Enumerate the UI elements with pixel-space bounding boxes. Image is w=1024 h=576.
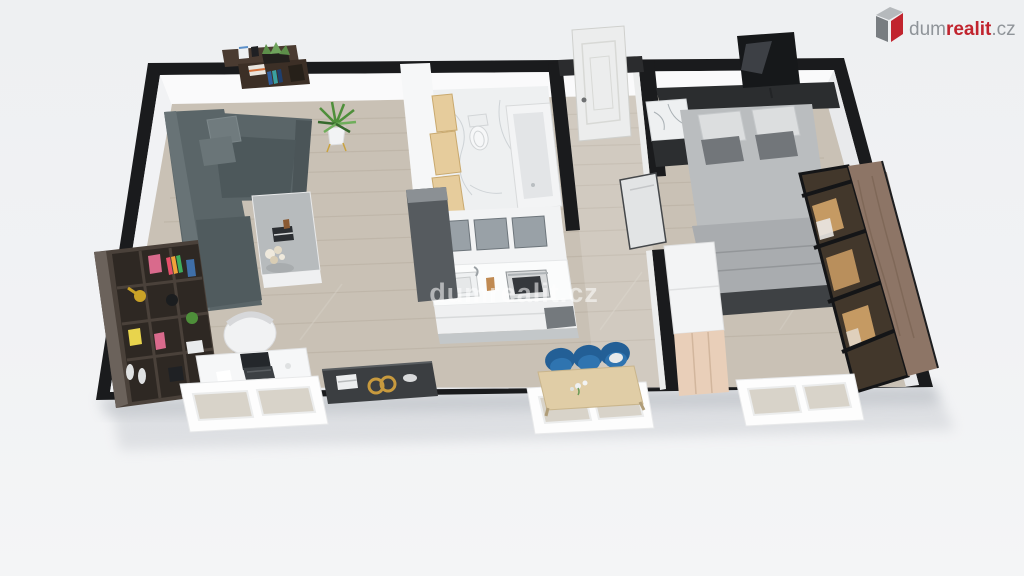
window-pane [193,391,253,420]
logo-text-dum: dum [909,19,946,40]
book-pink [154,332,166,350]
flower [274,246,282,254]
flower [279,254,285,260]
shelf-blue-accent [239,47,248,48]
dresser-front [674,330,729,396]
logo-text-cz: .cz [991,19,1015,40]
flower [583,381,588,386]
table-decor-brown [283,219,290,229]
desk-mug [285,363,291,369]
shelf-box [288,64,305,82]
coffee-table [252,192,322,288]
logo-text-realit: realit [946,19,992,40]
desk-papers [216,370,232,382]
laptop-base [243,366,275,380]
bed-pillow-gray [701,136,744,165]
plant-pot [328,127,345,145]
sideboard-plate [403,374,417,382]
bottle-decor [126,364,134,380]
dark-box [168,366,184,382]
toilet-tank [468,114,488,127]
brand-logo: dumrealit.cz [876,7,1016,42]
book-yellow [128,328,142,346]
bottle-decor [138,368,146,384]
glass-door [512,216,547,248]
bed-pillow-gray [755,131,798,160]
dumrealit-cube-icon [876,7,903,42]
book-pink [148,254,162,274]
door-handle [582,98,587,103]
logo-icon-front [876,16,888,42]
flower-shadow [266,263,294,273]
dining-set [538,340,644,416]
window-pane [257,387,315,415]
window-pane [748,386,801,415]
sofa-pillow [199,136,236,166]
flower [270,256,278,264]
window-right [736,374,864,426]
dark-knot-decor [166,294,178,306]
dining-table [538,366,643,410]
bath-wood-shelf [432,94,457,132]
window-left [180,376,328,432]
bathtub-drain [531,183,535,187]
logo-text: dumrealit.cz [909,19,1016,40]
kitchen-glass-doors [437,216,547,252]
oven-drawer [544,306,576,329]
window-pane [803,383,851,410]
glass-door [474,218,509,250]
green-plant-ball [186,312,198,324]
watermark-text: dumrealit.cz [429,278,599,308]
succulent-plant [262,42,290,55]
floor-plan-render: dumrealit.cz dumrealit.cz [0,0,1024,576]
shelf-book-spines [267,69,283,85]
book-white-stack [186,340,204,354]
bath-wood-shelf [430,131,461,175]
flower [570,387,574,391]
floor-plan-svg: dumrealit.cz dumrealit.cz [0,0,1024,576]
entry-door-leaf [572,26,631,141]
shelf-dark-item [251,46,259,57]
